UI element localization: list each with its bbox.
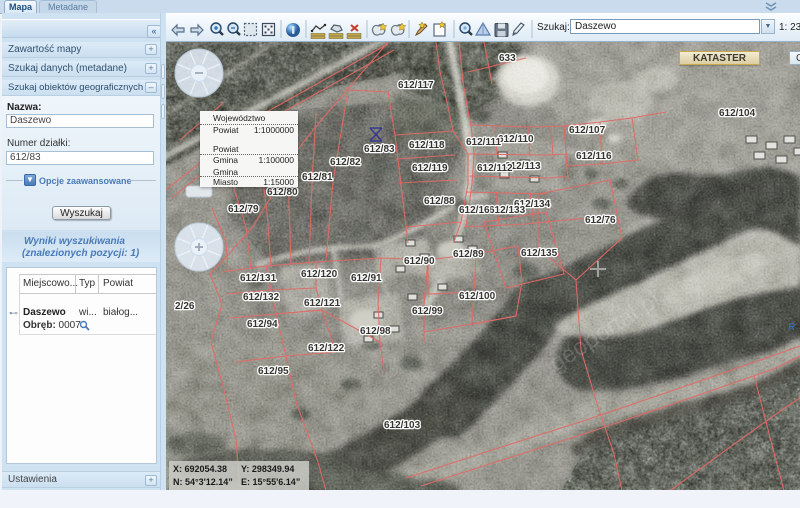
svg-text:612/104: 612/104	[719, 108, 756, 119]
svg-text:612/116: 612/116	[576, 151, 612, 162]
svg-text:612/133: 612/133	[489, 205, 526, 216]
svg-text:612/88: 612/88	[424, 196, 455, 207]
svg-text:612/95: 612/95	[258, 366, 289, 377]
svg-text:612/122: 612/122	[308, 343, 345, 354]
svg-text:612/121: 612/121	[304, 298, 341, 309]
svg-text:612/79: 612/79	[228, 204, 259, 215]
svg-text:612/16: 612/16	[459, 205, 490, 216]
svg-text:612/132: 612/132	[243, 292, 280, 303]
svg-text:R: R	[788, 322, 795, 333]
svg-text:612/103: 612/103	[384, 420, 421, 431]
svg-text:612/80: 612/80	[267, 187, 298, 198]
svg-text:612/94: 612/94	[247, 319, 278, 330]
svg-text:612/81: 612/81	[302, 172, 333, 183]
svg-text:612/107: 612/107	[569, 125, 606, 136]
svg-text:2/26: 2/26	[175, 301, 195, 312]
svg-text:612/76: 612/76	[585, 215, 616, 226]
svg-text:612/99: 612/99	[412, 306, 443, 317]
svg-text:633: 633	[499, 53, 516, 64]
svg-text:612/135: 612/135	[521, 248, 558, 259]
svg-text:612/82: 612/82	[330, 157, 361, 168]
svg-text:612/112: 612/112	[477, 163, 513, 174]
svg-text:612/131: 612/131	[240, 273, 277, 284]
svg-text:612/91: 612/91	[351, 273, 382, 284]
svg-text:612/118: 612/118	[409, 140, 445, 151]
svg-text:612/111: 612/111	[466, 137, 501, 148]
svg-text:612/110: 612/110	[498, 134, 534, 145]
svg-text:612/120: 612/120	[301, 269, 338, 280]
svg-text:612/100: 612/100	[459, 291, 496, 302]
svg-text:612/98: 612/98	[360, 326, 391, 337]
svg-text:612/119: 612/119	[412, 163, 448, 174]
svg-text:612/90: 612/90	[404, 256, 435, 267]
svg-text:612/83: 612/83	[364, 144, 395, 155]
svg-text:612/89: 612/89	[453, 249, 484, 260]
svg-text:612/117: 612/117	[398, 80, 434, 91]
